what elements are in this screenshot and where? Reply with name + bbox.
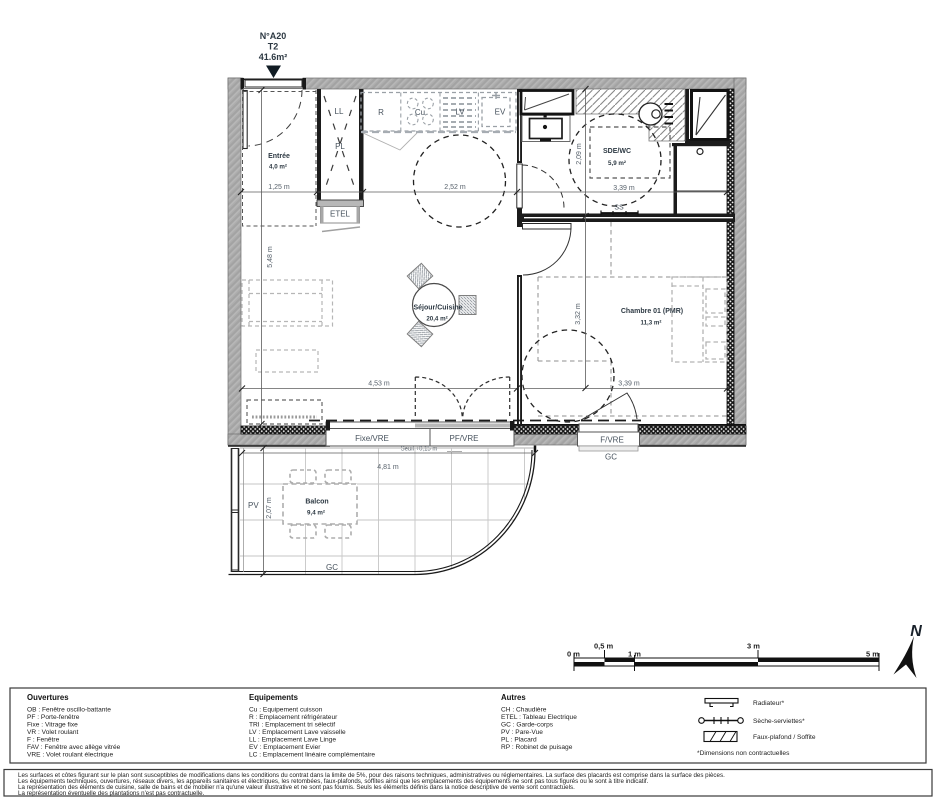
svg-text:4,53 m: 4,53 m xyxy=(368,381,390,388)
svg-text:1,25 m: 1,25 m xyxy=(268,184,290,191)
svg-text:VRE : Volet roulant électrique: VRE : Volet roulant électrique xyxy=(27,752,113,759)
svg-text:PV : Pare-Vue: PV : Pare-Vue xyxy=(501,729,543,736)
svg-text:0,5 m: 0,5 m xyxy=(594,642,614,651)
svg-text:N: N xyxy=(910,623,922,640)
svg-text:GC : Garde-corps: GC : Garde-corps xyxy=(501,722,554,729)
svg-text:9,4 m²: 9,4 m² xyxy=(307,510,325,517)
svg-text:FAV : Fenêtre avec allège vitr: FAV : Fenêtre avec allège vitrée xyxy=(27,744,121,751)
svg-text:5 m: 5 m xyxy=(866,650,879,659)
svg-text:LV : Emplacement Lave vaissell: LV : Emplacement Lave vaisselle xyxy=(249,729,346,736)
svg-text:Seuil +0,15 m: Seuil +0,15 m xyxy=(401,447,438,453)
svg-text:SDE/WC: SDE/WC xyxy=(603,148,631,155)
svg-text:PF : Porte-fenêtre: PF : Porte-fenêtre xyxy=(27,714,80,721)
svg-text:EV: EV xyxy=(495,108,506,117)
svg-text:PL: PL xyxy=(335,142,345,151)
svg-text:LC : Emplacement linéaire comp: LC : Emplacement linéaire complémentaire xyxy=(249,752,375,759)
svg-text:CH : Chaudière: CH : Chaudière xyxy=(501,707,547,714)
svg-text:Cu : Equipement cuisson: Cu : Equipement cuisson xyxy=(249,707,323,714)
svg-text:Sèche-serviettes*: Sèche-serviettes* xyxy=(753,718,805,725)
svg-text:R: R xyxy=(378,108,384,117)
svg-text:3 m: 3 m xyxy=(747,642,760,651)
svg-text:Fixe : Vitrage fixe: Fixe : Vitrage fixe xyxy=(27,722,78,729)
svg-text:OB : Fenêtre oscillo-battante: OB : Fenêtre oscillo-battante xyxy=(27,707,111,714)
svg-text:Cu: Cu xyxy=(415,108,425,117)
svg-text:5,9 m²: 5,9 m² xyxy=(608,160,626,167)
svg-text:LL: LL xyxy=(335,107,344,116)
svg-text:Ouvertures: Ouvertures xyxy=(27,693,69,702)
svg-text:TRI : Emplacement tri sélectif: TRI : Emplacement tri sélectif xyxy=(249,722,335,729)
svg-text:ETEL : Tableau Electrique: ETEL : Tableau Electrique xyxy=(501,714,577,721)
svg-text:41.6m²: 41.6m² xyxy=(259,52,288,62)
svg-text:Séjour/Cuisine: Séjour/Cuisine xyxy=(413,305,462,312)
svg-text:4,81 m: 4,81 m xyxy=(377,464,399,471)
svg-text:11,3 m²: 11,3 m² xyxy=(641,320,662,327)
svg-text:2,07 m: 2,07 m xyxy=(266,497,273,519)
svg-text:GC: GC xyxy=(605,453,617,462)
svg-text:0 m: 0 m xyxy=(567,650,580,659)
svg-text:Autres: Autres xyxy=(501,693,526,702)
svg-text:3,39 m: 3,39 m xyxy=(618,381,640,388)
svg-text:2,52 m: 2,52 m xyxy=(444,184,466,191)
svg-text:LL : Emplacement Lave Linge: LL : Emplacement Lave Linge xyxy=(249,737,336,744)
svg-text:5,48 m: 5,48 m xyxy=(267,246,274,268)
svg-text:3,32 m: 3,32 m xyxy=(575,303,582,325)
svg-text:La représentation éventuelle d: La représentation éventuelle des plantat… xyxy=(18,790,205,797)
svg-text:RP : Robinet de puisage: RP : Robinet de puisage xyxy=(501,744,573,751)
svg-text:Chambre 01 (PMR): Chambre 01 (PMR) xyxy=(621,308,683,315)
svg-text:Entrée: Entrée xyxy=(268,153,290,160)
svg-text:Fixe/VRE: Fixe/VRE xyxy=(355,434,389,443)
svg-text:EV : Emplacement Evier: EV : Emplacement Evier xyxy=(249,744,321,751)
svg-text:3,39 m: 3,39 m xyxy=(613,185,635,192)
svg-text:PF/VRE: PF/VRE xyxy=(450,434,479,443)
svg-text:PV: PV xyxy=(248,501,259,510)
svg-text:Balcon: Balcon xyxy=(305,499,328,506)
svg-text:F : Fenêtre: F : Fenêtre xyxy=(27,737,60,744)
svg-text:Equipements: Equipements xyxy=(249,693,299,702)
svg-text:20,4 m²: 20,4 m² xyxy=(426,316,447,323)
svg-text:SS: SS xyxy=(614,205,624,212)
svg-text:*Dimensions non contractuelles: *Dimensions non contractuelles xyxy=(697,750,790,757)
svg-text:PL : Placard: PL : Placard xyxy=(501,737,537,744)
svg-text:GC: GC xyxy=(326,563,338,572)
svg-text:ETEL: ETEL xyxy=(330,210,351,219)
svg-text:R : Emplacement réfrigérateur: R : Emplacement réfrigérateur xyxy=(249,714,338,721)
svg-text:4,0 m²: 4,0 m² xyxy=(269,164,287,171)
svg-text:LV: LV xyxy=(455,108,465,117)
svg-text:Radiateur*: Radiateur* xyxy=(753,700,785,707)
svg-text:F/VRE: F/VRE xyxy=(600,436,624,445)
svg-text:Faux-plafond / Soffite: Faux-plafond / Soffite xyxy=(753,734,816,741)
svg-text:VR : Volet roulant: VR : Volet roulant xyxy=(27,729,78,736)
svg-text:2,09 m: 2,09 m xyxy=(576,143,583,165)
svg-text:T2: T2 xyxy=(268,42,279,52)
svg-text:N°A20: N°A20 xyxy=(260,31,287,41)
svg-text:1 m: 1 m xyxy=(628,650,641,659)
